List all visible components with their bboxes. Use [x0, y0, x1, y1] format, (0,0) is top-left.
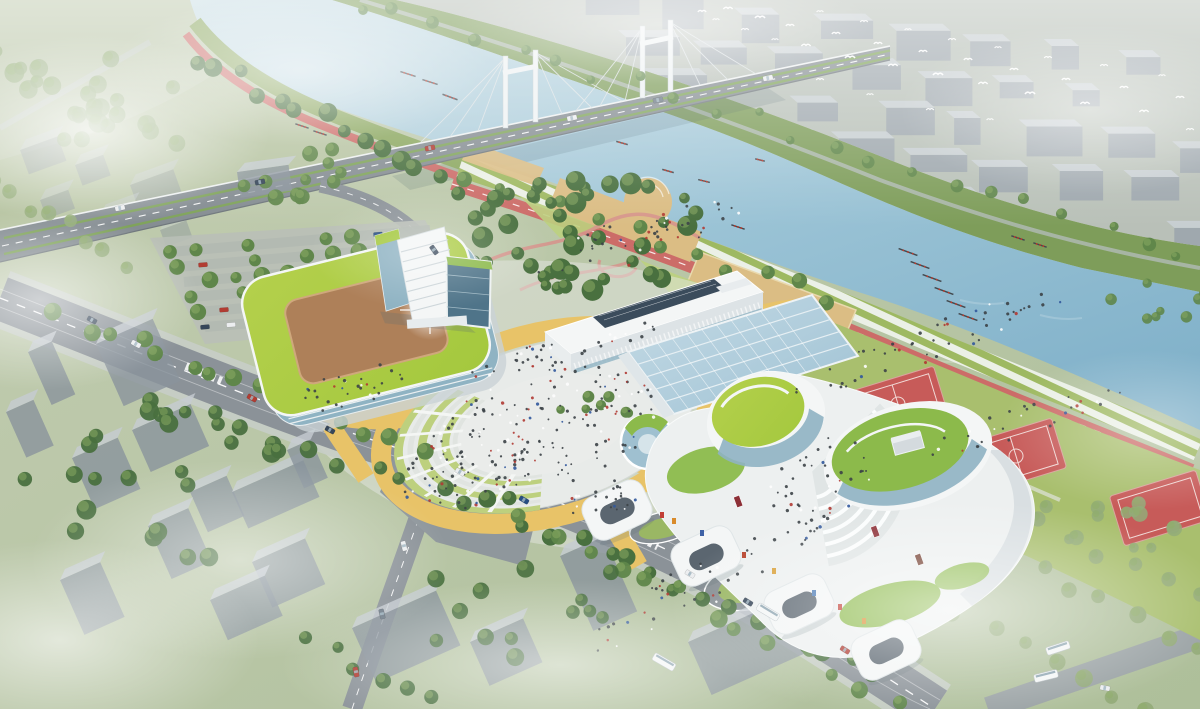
architectural-rendering: Riverside sports and culture campus — ae…: [0, 0, 1200, 709]
rendering-canvas: Riverside sports and culture campus — ae…: [0, 0, 1200, 709]
haze-veil: [0, 0, 1200, 709]
